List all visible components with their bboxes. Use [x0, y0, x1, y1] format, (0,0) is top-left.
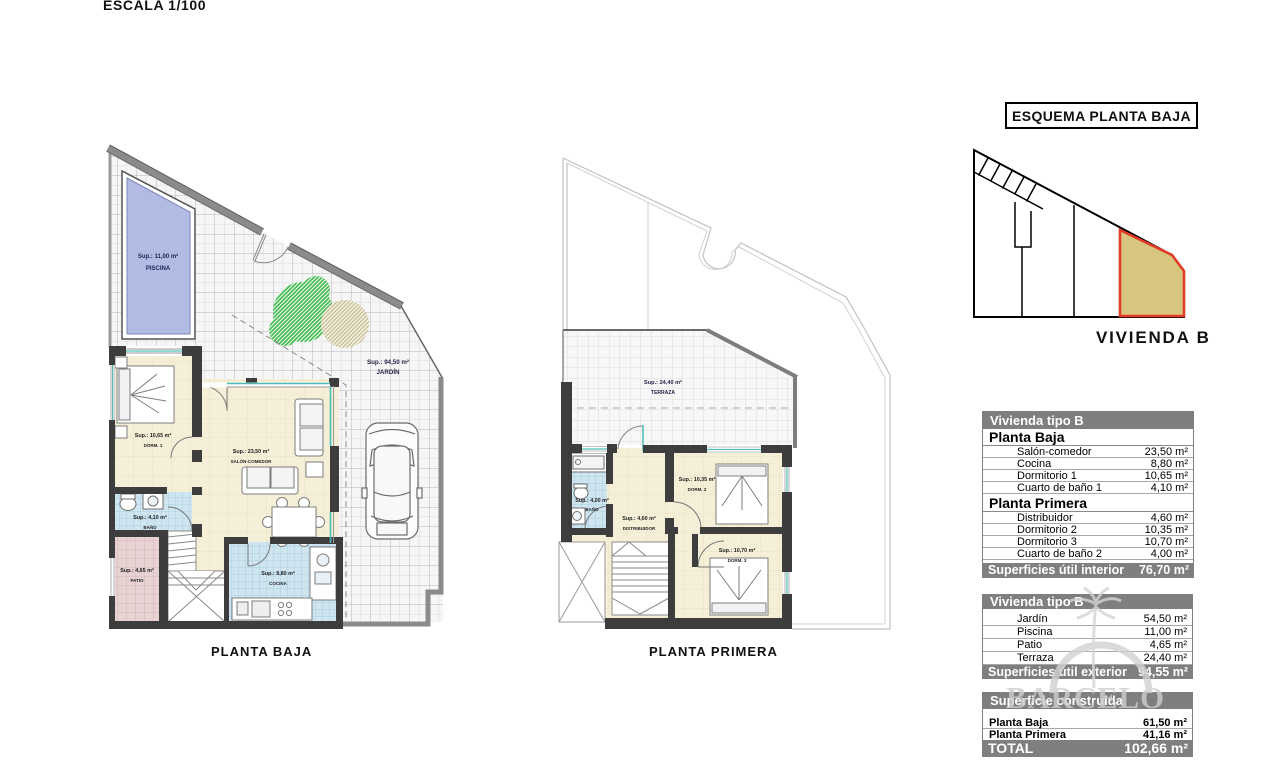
svg-text:BARCELO: BARCELO — [1006, 680, 1165, 715]
